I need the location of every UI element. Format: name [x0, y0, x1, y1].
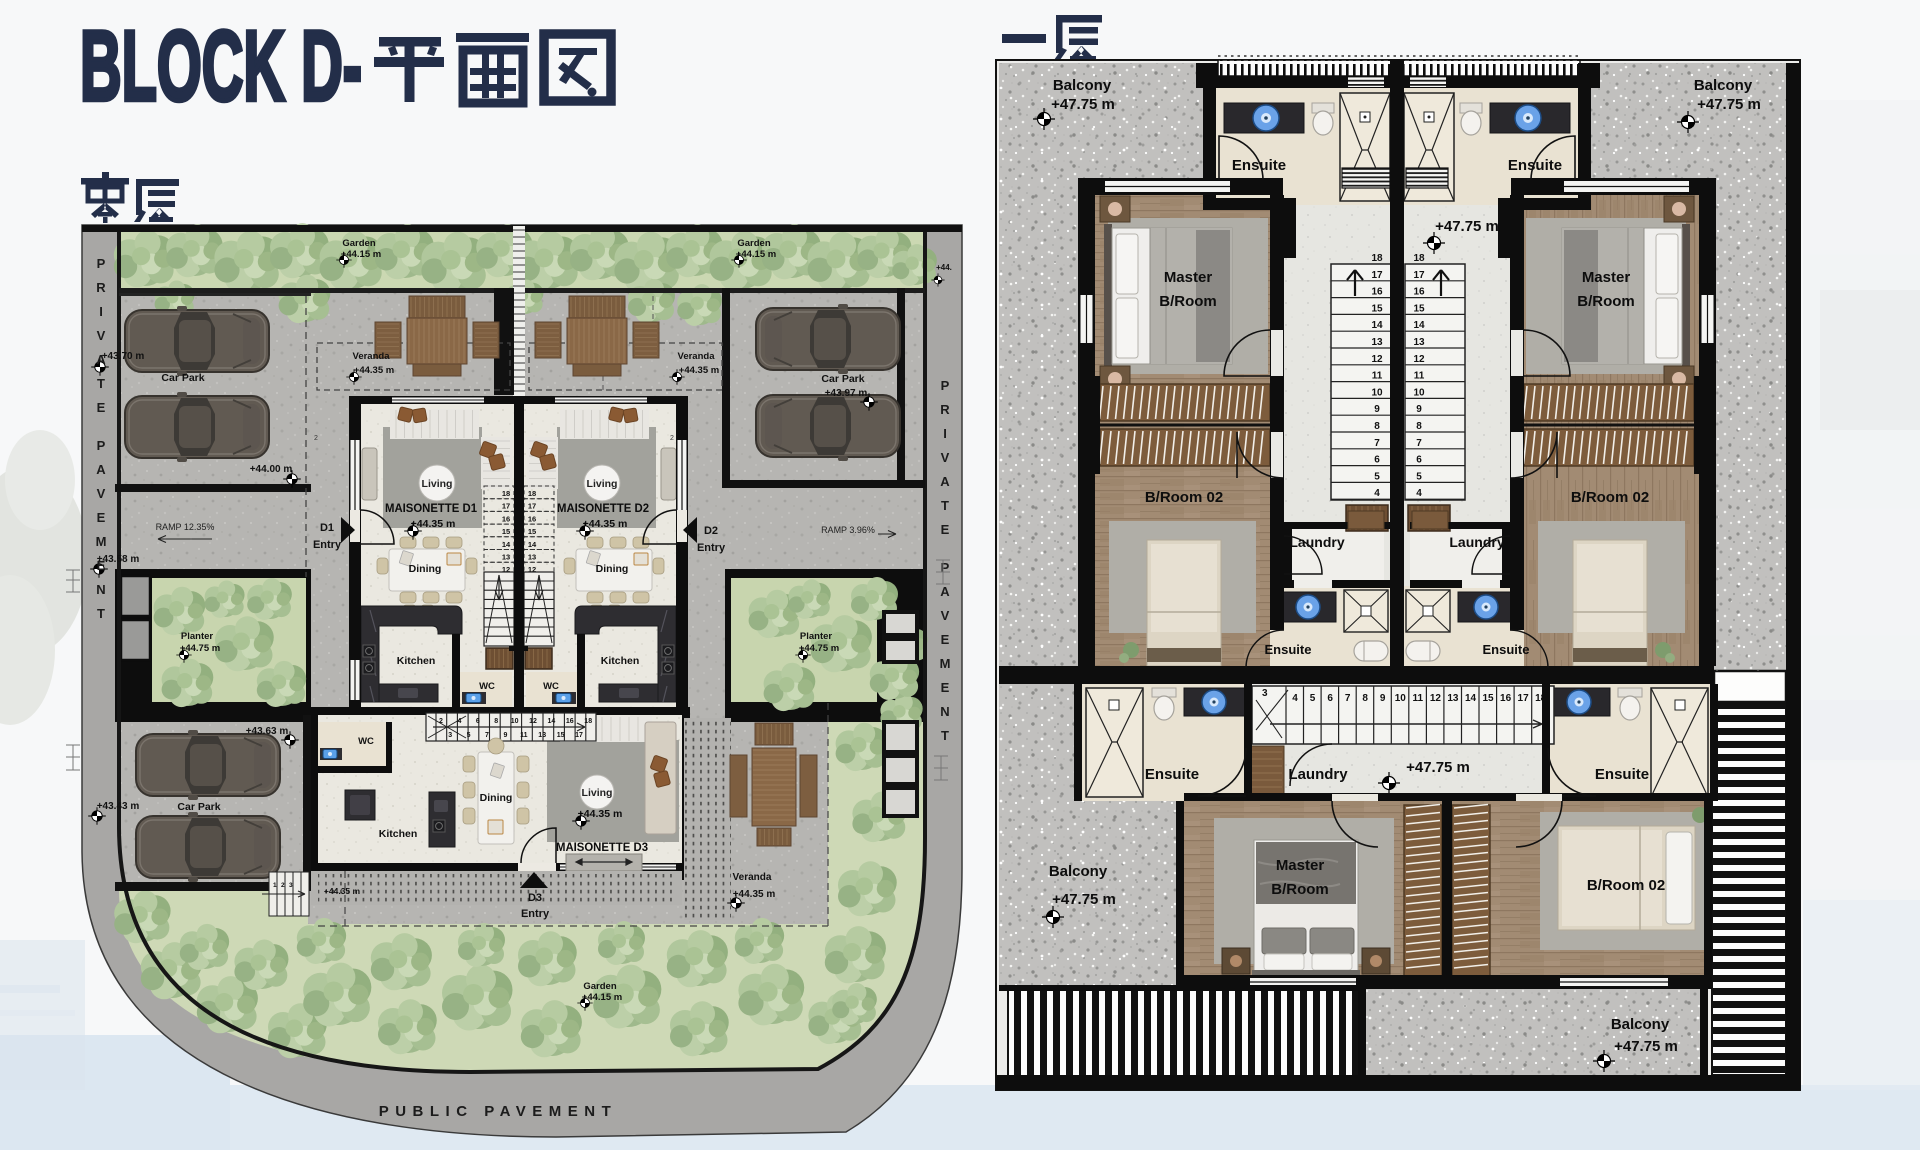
svg-text:E: E [941, 522, 950, 537]
svg-text:M: M [940, 656, 951, 671]
svg-text:13: 13 [502, 553, 510, 562]
svg-text:E: E [97, 510, 106, 525]
svg-text:17: 17 [1413, 270, 1425, 281]
svg-text:11: 11 [1413, 693, 1424, 704]
svg-text:15: 15 [1413, 303, 1425, 314]
svg-text:10: 10 [1413, 387, 1425, 398]
svg-text:18: 18 [502, 489, 510, 498]
svg-text:Living: Living [587, 478, 618, 490]
svg-text:13: 13 [538, 732, 546, 739]
svg-text:V: V [97, 328, 106, 343]
svg-text:Car Park: Car Park [821, 373, 864, 385]
svg-text:18: 18 [1413, 253, 1425, 264]
svg-text:3: 3 [289, 882, 293, 889]
svg-text:Laundry: Laundry [1288, 766, 1348, 783]
svg-text:B/Room: B/Room [1271, 881, 1329, 898]
svg-text:6: 6 [476, 718, 480, 725]
svg-text:Dining: Dining [596, 563, 629, 575]
svg-text:13: 13 [1413, 337, 1425, 348]
svg-text:14: 14 [502, 540, 511, 549]
svg-text:1: 1 [273, 882, 277, 889]
svg-text:9: 9 [1416, 404, 1422, 415]
svg-text:+44.35 m: +44.35 m [324, 886, 361, 896]
svg-text:Veranda: Veranda [678, 351, 716, 362]
svg-text:17: 17 [1371, 270, 1383, 281]
svg-text:16: 16 [528, 514, 536, 523]
svg-text:Balcony: Balcony [1611, 1016, 1670, 1033]
svg-text:Balcony: Balcony [1053, 77, 1112, 94]
svg-text:3: 3 [448, 732, 452, 739]
svg-text:Living: Living [422, 478, 453, 490]
svg-text:P: P [97, 438, 106, 453]
svg-text:Entry: Entry [521, 908, 550, 920]
svg-text:E: E [941, 632, 950, 647]
svg-text:9: 9 [503, 732, 507, 739]
svg-text:+47.75 m: +47.75 m [1435, 218, 1499, 235]
svg-text:B/Room 02: B/Room 02 [1587, 877, 1665, 894]
svg-text:18: 18 [528, 489, 536, 498]
svg-text:5: 5 [467, 732, 471, 739]
svg-text:A: A [940, 474, 950, 489]
svg-text:Kitchen: Kitchen [601, 655, 640, 667]
svg-text:16: 16 [502, 514, 510, 523]
svg-text:9: 9 [1380, 693, 1386, 704]
svg-text:17: 17 [575, 732, 583, 739]
svg-text:PUBLIC PAVEMENT: PUBLIC PAVEMENT [379, 1103, 618, 1120]
svg-text:4: 4 [1416, 488, 1422, 499]
svg-text:16: 16 [1413, 287, 1425, 298]
svg-text:5: 5 [1374, 471, 1380, 482]
svg-text:8: 8 [1374, 421, 1380, 432]
svg-text:Dining: Dining [409, 563, 442, 575]
svg-text:B/Room 02: B/Room 02 [1571, 489, 1649, 506]
svg-text:P: P [941, 560, 950, 575]
svg-text:Ensuite: Ensuite [1145, 766, 1199, 783]
svg-text:+43.97 m: +43.97 m [825, 388, 868, 399]
svg-text:Laundry: Laundry [1449, 534, 1504, 550]
svg-text:WC: WC [479, 681, 495, 692]
svg-text:P: P [97, 256, 106, 271]
svg-text:12: 12 [1430, 693, 1442, 704]
svg-text:Ensuite: Ensuite [1595, 766, 1649, 783]
svg-text:14: 14 [1465, 693, 1477, 704]
svg-text:11: 11 [1414, 371, 1425, 382]
svg-text:7: 7 [485, 732, 489, 739]
svg-text:17: 17 [528, 502, 536, 511]
svg-text:5: 5 [1416, 471, 1422, 482]
svg-text:+47.75 m: +47.75 m [1051, 96, 1115, 113]
svg-text:+43.70 m: +43.70 m [102, 351, 145, 362]
svg-text:Kitchen: Kitchen [397, 655, 436, 667]
svg-text:Balcony: Balcony [1049, 863, 1108, 880]
svg-text:+44.35 m: +44.35 m [354, 365, 394, 376]
svg-text:WC: WC [543, 681, 559, 692]
svg-text:2: 2 [281, 882, 285, 889]
svg-text:10: 10 [1395, 693, 1407, 704]
svg-text:D3: D3 [528, 892, 542, 904]
svg-text:14: 14 [528, 540, 537, 549]
svg-text:MAISONETTE D2: MAISONETTE D2 [557, 501, 649, 515]
svg-text:B/Room: B/Room [1577, 293, 1635, 310]
svg-text:15: 15 [502, 527, 510, 536]
svg-text:Entry: Entry [313, 539, 342, 551]
svg-text:Master: Master [1164, 269, 1213, 286]
svg-text:RAMP 12.35%: RAMP 12.35% [156, 522, 215, 532]
svg-text:Car Park: Car Park [161, 372, 204, 384]
svg-text:Kitchen: Kitchen [379, 828, 418, 840]
svg-text:R: R [96, 280, 106, 295]
svg-text:6: 6 [1327, 693, 1333, 704]
svg-text:R: R [940, 402, 950, 417]
svg-text:T: T [941, 728, 949, 743]
svg-text:16: 16 [566, 718, 574, 725]
svg-text:N: N [96, 582, 105, 597]
svg-text:D1: D1 [320, 522, 334, 534]
svg-text:+44.35 m: +44.35 m [679, 365, 719, 376]
svg-text:13: 13 [1371, 337, 1383, 348]
svg-text:Planter: Planter [181, 631, 214, 642]
svg-text:+44.: +44. [936, 263, 952, 272]
svg-text:14: 14 [1413, 320, 1425, 331]
svg-text:8: 8 [494, 718, 498, 725]
svg-text:12: 12 [1371, 354, 1383, 365]
svg-text:12: 12 [529, 718, 537, 725]
svg-text:Master: Master [1276, 857, 1325, 874]
svg-text:Balcony: Balcony [1694, 77, 1753, 94]
svg-text:6: 6 [1374, 455, 1380, 466]
svg-text:B/Room: B/Room [1159, 293, 1217, 310]
svg-text:+47.75 m: +47.75 m [1697, 96, 1761, 113]
svg-text:13: 13 [528, 553, 536, 562]
svg-text:A: A [940, 584, 950, 599]
svg-text:10: 10 [1371, 387, 1383, 398]
svg-text:E: E [97, 558, 106, 573]
svg-text:T: T [97, 606, 105, 621]
svg-text:Laundry: Laundry [1289, 534, 1344, 550]
svg-text:7: 7 [1374, 438, 1380, 449]
svg-text:Entry: Entry [697, 542, 726, 554]
svg-text:3: 3 [1262, 688, 1268, 699]
svg-text:12: 12 [1413, 354, 1425, 365]
svg-text:+44.00 m: +44.00 m [250, 464, 293, 475]
svg-text:18: 18 [1371, 253, 1383, 264]
svg-text:15: 15 [1371, 303, 1383, 314]
svg-text:Living: Living [582, 787, 613, 799]
svg-text:18: 18 [584, 718, 592, 725]
svg-text:Garden: Garden [583, 981, 616, 992]
svg-text:Master: Master [1582, 269, 1631, 286]
svg-text:14: 14 [1371, 320, 1383, 331]
svg-text:11: 11 [520, 732, 528, 739]
svg-text:N: N [940, 704, 949, 719]
svg-text:8: 8 [1416, 421, 1422, 432]
svg-text:+43.63 m: +43.63 m [246, 726, 289, 737]
svg-text:15: 15 [528, 527, 536, 536]
svg-text:RAMP 3.96%: RAMP 3.96% [821, 525, 875, 535]
svg-text:16: 16 [1371, 287, 1383, 298]
svg-text:4: 4 [457, 718, 461, 725]
svg-text:A: A [96, 462, 106, 477]
svg-text:7: 7 [1345, 693, 1351, 704]
svg-text:T: T [941, 498, 949, 513]
svg-text:16: 16 [1500, 693, 1512, 704]
svg-text:+47.75 m: +47.75 m [1052, 891, 1116, 908]
svg-text:14: 14 [548, 718, 556, 725]
svg-text:15: 15 [557, 732, 565, 739]
svg-text:E: E [941, 680, 950, 695]
svg-text:9: 9 [1374, 404, 1380, 415]
svg-text:13: 13 [1447, 693, 1459, 704]
svg-text:V: V [97, 486, 106, 501]
svg-text:WC: WC [358, 736, 374, 747]
svg-text:D2: D2 [704, 525, 718, 537]
svg-text:BLOCK D-: BLOCK D- [80, 10, 362, 121]
svg-text:B/Room 02: B/Room 02 [1145, 489, 1223, 506]
svg-text:2: 2 [314, 435, 318, 442]
svg-text:2: 2 [670, 435, 674, 442]
svg-text:6: 6 [1416, 455, 1422, 466]
svg-text:7: 7 [1416, 438, 1422, 449]
svg-text:Dining: Dining [480, 792, 513, 804]
svg-text:I: I [99, 304, 103, 319]
svg-text:17: 17 [502, 502, 510, 511]
svg-text:I: I [943, 426, 947, 441]
svg-text:Garden: Garden [342, 238, 375, 249]
svg-text:11: 11 [1372, 371, 1383, 382]
svg-text:V: V [941, 450, 950, 465]
svg-text:V: V [941, 608, 950, 623]
svg-text:Ensuite: Ensuite [1483, 642, 1530, 657]
svg-text:T: T [97, 376, 105, 391]
svg-text:+43.43 m: +43.43 m [97, 801, 140, 812]
svg-text:+47.75 m: +47.75 m [1614, 1038, 1678, 1055]
svg-text:P: P [941, 378, 950, 393]
svg-text:4: 4 [1374, 488, 1380, 499]
svg-text:8: 8 [1362, 693, 1368, 704]
svg-text:Veranda: Veranda [733, 872, 772, 883]
svg-text:A: A [96, 352, 106, 367]
svg-text:E: E [97, 400, 106, 415]
svg-text:2: 2 [439, 718, 443, 725]
svg-text:MAISONETTE D3: MAISONETTE D3 [556, 840, 648, 854]
svg-text:Veranda: Veranda [353, 351, 391, 362]
svg-text:Garden: Garden [737, 238, 770, 249]
svg-text:Ensuite: Ensuite [1265, 642, 1312, 657]
svg-text:+47.75 m: +47.75 m [1406, 759, 1470, 776]
svg-text:10: 10 [511, 718, 519, 725]
svg-text:Planter: Planter [800, 631, 833, 642]
svg-text:4: 4 [1292, 693, 1298, 704]
svg-text:M: M [96, 534, 107, 549]
svg-text:MAISONETTE D1: MAISONETTE D1 [385, 501, 477, 515]
svg-text:5: 5 [1310, 693, 1316, 704]
svg-text:17: 17 [1518, 693, 1530, 704]
svg-text:Car Park: Car Park [177, 801, 220, 813]
svg-text:15: 15 [1482, 693, 1494, 704]
